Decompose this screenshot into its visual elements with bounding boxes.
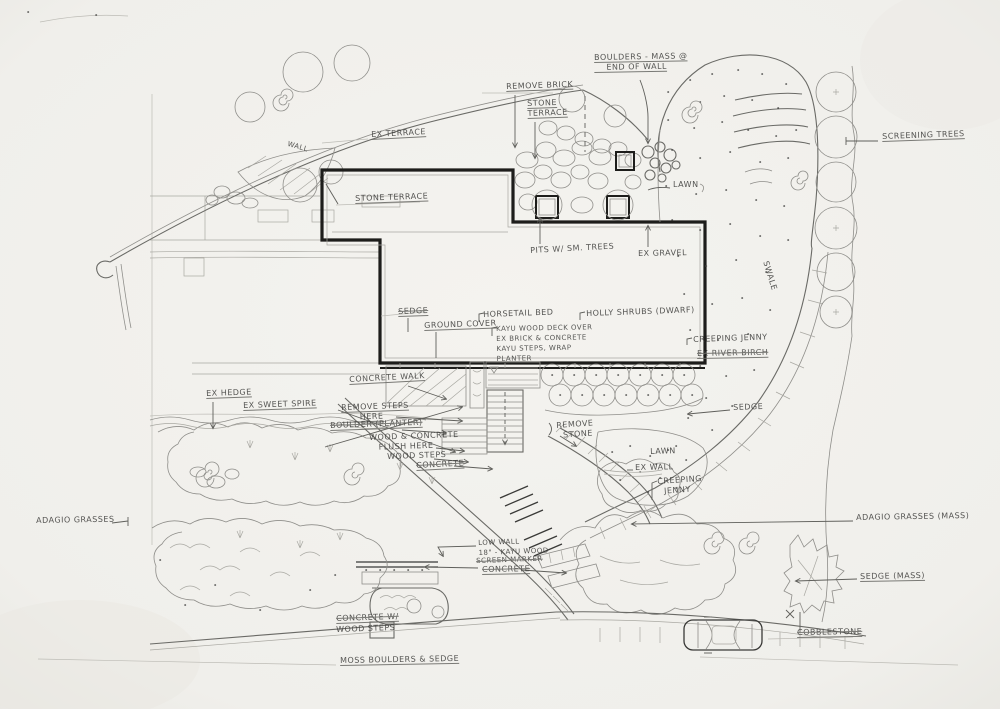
site-plan-drawing [0, 0, 1000, 709]
landscape-plan-sheet: BOULDERS - MASS @ END OF WALLREMOVE BRIC… [0, 0, 1000, 709]
